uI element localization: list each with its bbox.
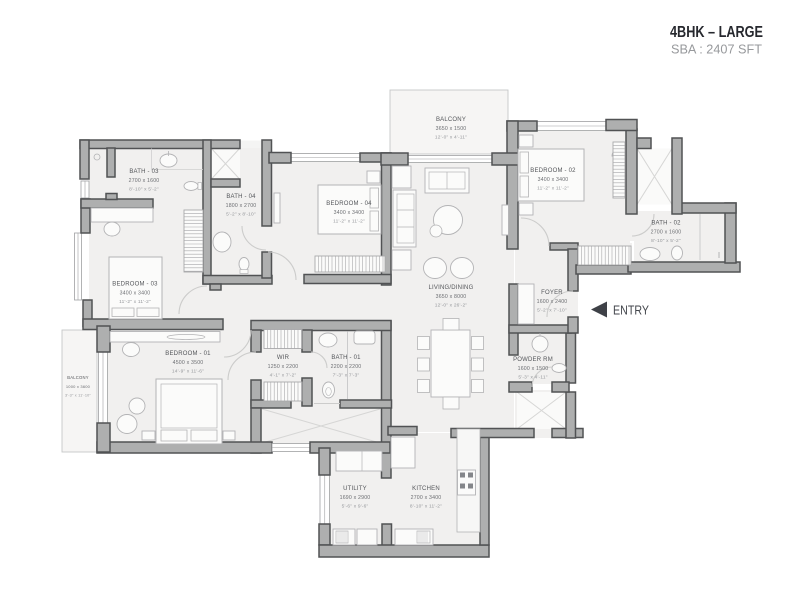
svg-text:FOYER1600 x 24005'-2" x 7'-10": FOYER1600 x 24005'-2" x 7'-10" xyxy=(537,290,568,314)
svg-text:4BHK – LARGE: 4BHK – LARGE xyxy=(670,24,763,41)
svg-text:BATH - 041800 x 27005'-2" x 8': BATH - 041800 x 27005'-2" x 8'-10" xyxy=(226,194,257,218)
svg-text:BATH - 032700 x 16008'-10" x 5: BATH - 032700 x 16008'-10" x 5'-2" xyxy=(129,169,160,193)
svg-text:BATH - 022700 x 16008'-10" x 5: BATH - 022700 x 16008'-10" x 5'-2" xyxy=(651,221,682,245)
svg-text:BALCONY1000 x 36003'-3" x 11'-: BALCONY1000 x 36003'-3" x 11'-10" xyxy=(65,375,92,398)
svg-text:BALCONY3650 x 150012'-0" x 4'-: BALCONY3650 x 150012'-0" x 4'-11" xyxy=(435,117,467,141)
svg-text:SBA : 2407 SFT: SBA : 2407 SFT xyxy=(671,42,762,57)
svg-text:UTILITY1690 x 29005'-6" x 9'-6: UTILITY1690 x 29005'-6" x 9'-6" xyxy=(340,486,371,510)
svg-text:ENTRY: ENTRY xyxy=(613,304,650,318)
svg-text:KITCHEN2700 x 34008'-10" x 11': KITCHEN2700 x 34008'-10" x 11'-2" xyxy=(410,486,442,510)
svg-text:BATH - 012200 x 22007'-3" x 7': BATH - 012200 x 22007'-3" x 7'-3" xyxy=(331,355,362,379)
svg-text:POWDER RM1600 x 15005'-3" x 4': POWDER RM1600 x 15005'-3" x 4'-11" xyxy=(513,357,553,381)
